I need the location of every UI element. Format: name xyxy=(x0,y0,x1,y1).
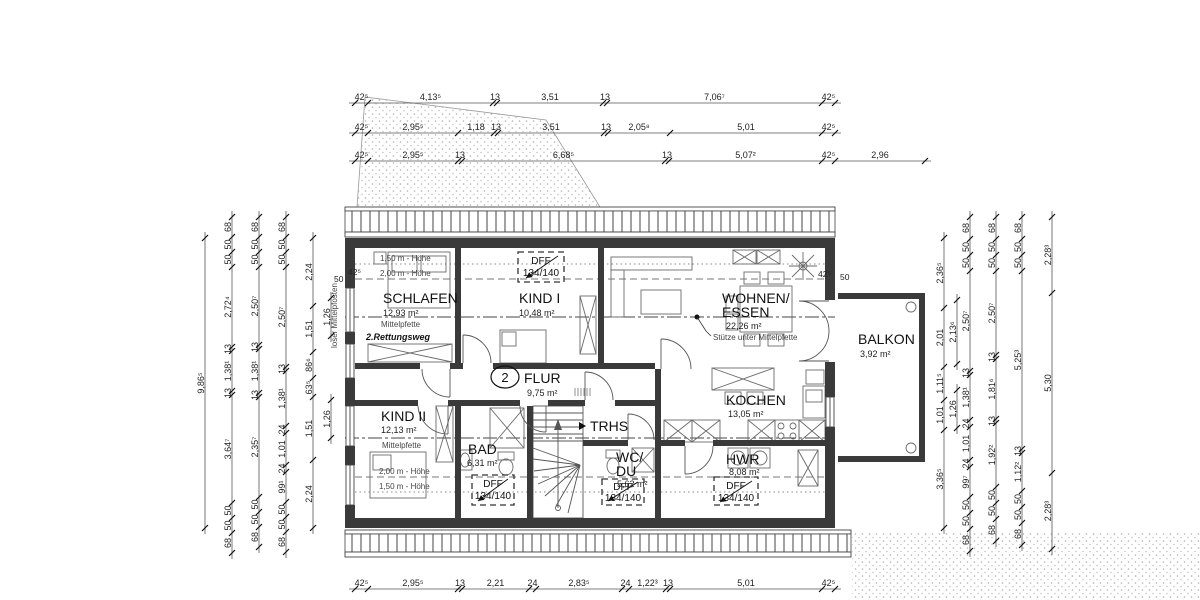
dimension-value: 68 xyxy=(1013,223,1023,233)
dimension-chain-left1: 9,86⁵ xyxy=(196,232,208,534)
dimension-chain-right5: 2,28³5,302,28³ xyxy=(1043,211,1055,555)
dimension-value: 50 xyxy=(250,514,260,524)
dimension-value: 2,28³ xyxy=(1043,501,1053,522)
svg-text:10,48 m²: 10,48 m² xyxy=(519,308,555,318)
dimension-value: 6,68⁵ xyxy=(553,150,575,160)
dimension-value: 50 xyxy=(1013,494,1023,504)
dimension-value: 68 xyxy=(223,538,233,548)
dimension-value: 5,30 xyxy=(1043,374,1053,392)
dimension-value: 1,38¹ xyxy=(277,388,287,409)
dimension-value: 42⁵ xyxy=(822,122,836,132)
dimension-value: 42⁵ xyxy=(355,578,369,588)
dimension-value: 2,50⁷ xyxy=(987,303,997,324)
door-balcony xyxy=(799,301,829,361)
door-trhs xyxy=(585,372,613,400)
dff-bad: DFF 134/140 xyxy=(472,475,514,505)
dimension-chain-left6b: 1,26 xyxy=(322,394,334,444)
svg-text:12,93 m²: 12,93 m² xyxy=(383,308,419,318)
dimension-value: 2,50⁷ xyxy=(250,296,260,317)
dimension-value: 50 xyxy=(1013,258,1023,268)
dimension-value: 2,96 xyxy=(871,150,889,160)
window xyxy=(346,288,354,332)
staircase xyxy=(533,406,583,518)
dimension-value: 50 xyxy=(987,242,997,252)
dimension-value: 1,12² xyxy=(1013,462,1023,483)
dimension-value: 5,01 xyxy=(737,122,755,132)
dimension-value: 50 xyxy=(961,516,971,526)
dimension-value: 13 xyxy=(277,364,287,374)
dimension-value: 1,18 xyxy=(467,122,485,132)
window xyxy=(826,397,834,427)
dimension-value: 3,36⁵ xyxy=(935,468,945,490)
window xyxy=(346,344,354,378)
dimension-value: 1,51 xyxy=(304,420,314,438)
dimension-value: 7,06⁷ xyxy=(704,92,725,102)
room-label-bad: BAD xyxy=(468,441,497,457)
dimension-value: 3,51 xyxy=(541,92,559,102)
svg-text:2,00 m - Höhe: 2,00 m - Höhe xyxy=(379,467,430,476)
sink-unit xyxy=(806,370,824,384)
dimension-value: 2,24 xyxy=(304,263,314,281)
room-label-hwr: HWR xyxy=(726,451,759,467)
dimension-value: 1,26 xyxy=(948,400,958,418)
dimension-value: 68 xyxy=(277,222,287,232)
dimension-value: 68 xyxy=(1013,529,1023,539)
dimension-value: 1,38¹ xyxy=(223,361,233,382)
dimension-value: 50 xyxy=(987,258,997,268)
dimension-value: 99¹ xyxy=(277,480,287,493)
door-hwr xyxy=(685,446,713,474)
dff-hwr: DFF 134/140 xyxy=(714,477,758,505)
dimension-value: 50 xyxy=(987,506,997,516)
roof-windows: DFF 134/140 DFF 134/140 DFF 134/140 DFF … xyxy=(472,252,758,505)
dimension-value: 50 xyxy=(277,239,287,249)
sofa-arm xyxy=(611,270,624,317)
door-schlafen xyxy=(422,369,450,397)
dimension-value: 68 xyxy=(223,222,233,232)
dimension-value: 2,83⁵ xyxy=(568,578,590,588)
dimension-value: 24 xyxy=(620,578,630,588)
dimension-value: 5,07² xyxy=(735,150,756,160)
dimension-value: 42⁵ xyxy=(355,150,369,160)
dimension-value: 68 xyxy=(961,223,971,233)
dimension-value: 2,21 xyxy=(487,578,505,588)
dff-size: 134/140 xyxy=(605,493,642,504)
floor-plan-sheet: DFF 134/140 DFF 134/140 DFF 134/140 DFF … xyxy=(0,0,1200,600)
dimension-value: 50 xyxy=(250,254,260,264)
dimension-value: 1,11⁵ xyxy=(935,373,945,394)
dimension-value: 13 xyxy=(491,122,501,132)
ground-texture xyxy=(852,532,1200,600)
dimension-value: 1,38¹ xyxy=(250,361,260,382)
dimension-value: 68 xyxy=(987,525,997,535)
dimension-value: 68 xyxy=(250,222,260,232)
dimension-chain-right1c: 1,26 xyxy=(948,384,960,434)
dimension-value: 2,95⁵ xyxy=(402,578,424,588)
dimension-value: 13 xyxy=(987,416,997,426)
dimension-value: 13 xyxy=(600,92,610,102)
svg-text:12,13 m²: 12,13 m² xyxy=(381,425,417,435)
oven xyxy=(806,390,822,402)
dimension-value: 50 xyxy=(961,500,971,510)
dimension-value: 1,38¹ xyxy=(961,387,971,408)
dimension-chain-right1b: 2,13⁶ xyxy=(948,294,960,370)
dimension-chain-bottom: 42⁵2,95⁵132,21242,83⁵241,22³135,0142⁵ xyxy=(349,578,841,592)
dff-size: 134/140 xyxy=(718,493,755,504)
dimension-value: 13 xyxy=(662,150,672,160)
hoehe-150-label: 1,50 m - Höhe xyxy=(380,254,431,263)
dimension-value: 13 xyxy=(455,578,465,588)
dimension-value: 2,50⁷ xyxy=(961,311,971,332)
dimension-value: 42⁵ xyxy=(355,92,369,102)
dimension-value: 50 xyxy=(277,254,287,264)
dimension-chains: 42⁵4,13⁵133,51137,06⁷42⁵42⁵2,95⁵1,18133,… xyxy=(196,92,1055,592)
dimension-value: 9,86⁵ xyxy=(196,372,206,394)
balcony xyxy=(838,293,925,462)
dimension-value: 42⁵ xyxy=(355,122,369,132)
svg-text:6,31 m²: 6,31 m² xyxy=(467,458,498,468)
dimension-value: 1,01 xyxy=(935,406,945,424)
chair xyxy=(744,272,760,284)
dimension-chain-right4: 6850505,25³131,12²505068 xyxy=(1013,211,1025,551)
dimension-value: 1,22³ xyxy=(637,578,658,588)
room-label-trhs: TRHS xyxy=(590,418,628,434)
window xyxy=(346,406,354,446)
dimension-chain-top1: 42⁵4,13⁵133,51137,06⁷42⁵ xyxy=(349,92,841,106)
dimension-value: 63⁵ xyxy=(304,380,314,394)
svg-text:8,08 m²: 8,08 m² xyxy=(729,467,760,477)
stuetze-label: Stütze unter Mittelpfette xyxy=(713,333,798,342)
room-label-flur: FLUR xyxy=(524,370,561,386)
dimension-value: 2,95⁵ xyxy=(402,122,424,132)
dff-kind1: DFF 134/140 xyxy=(518,252,564,282)
room-label-kind1: KIND I xyxy=(519,290,560,306)
dimension-value: 50 xyxy=(987,490,997,500)
room-label-balkon: BALKON xyxy=(858,331,915,347)
dimension-value: 24 xyxy=(527,578,537,588)
dimension-value: 1,26 xyxy=(322,410,332,428)
dimension-value: 50 xyxy=(1013,242,1023,252)
dimension-value: 50 xyxy=(250,499,260,509)
plant-icon xyxy=(789,252,817,280)
dff-label: DFF xyxy=(726,481,745,492)
window xyxy=(346,465,354,505)
dimension-value: 13 xyxy=(601,122,611,132)
door-kind1 xyxy=(463,335,491,363)
dimension-value: 50 xyxy=(223,520,233,530)
door-wohnen xyxy=(661,339,691,369)
dimension-value: 4,13⁵ xyxy=(420,92,442,102)
dimension-value: 2,13⁶ xyxy=(948,321,958,343)
svg-text:22,26 m²: 22,26 m² xyxy=(726,321,762,331)
hoehe-200-label: 2,00 m - Höhe xyxy=(380,269,431,278)
dimension-value: 50 xyxy=(223,239,233,249)
dimension-value: 50 xyxy=(277,504,287,514)
svg-text:DU: DU xyxy=(616,463,636,479)
dimension-value: 3,51 xyxy=(542,122,560,132)
dimension-value: 86⁶ xyxy=(304,358,314,372)
chair xyxy=(768,272,784,284)
dimension-value: 50 xyxy=(223,254,233,264)
mittelpfette-label: Mittelpfette xyxy=(381,320,421,329)
dimension-value: 2,24 xyxy=(304,485,314,503)
dimension-value: 2,72⁴ xyxy=(223,296,233,318)
dimension-value: 42⁵ xyxy=(822,578,836,588)
door-wcdu xyxy=(628,414,654,440)
dimension-value: 2,35⁷ xyxy=(250,437,260,458)
svg-text:13,05 m²: 13,05 m² xyxy=(728,409,764,419)
dimension-value: 1,51 xyxy=(304,320,314,338)
wall-dim-tl-offset: 50 xyxy=(334,274,344,284)
dimension-value: 13 xyxy=(455,150,465,160)
dimension-value: 68 xyxy=(277,537,287,547)
dff-label: DFF xyxy=(531,256,550,267)
dimension-chain-left2: 6850502,72⁴131,38¹133,64⁷505068 xyxy=(223,211,235,559)
dimension-chain-right1: 2,36⁵2,011,11⁵1,013,36⁵ xyxy=(935,232,947,534)
dimension-value: 68 xyxy=(961,535,971,545)
coffee-table xyxy=(641,290,681,314)
dff-label: DFF xyxy=(483,479,502,490)
room-label-kochen: KOCHEN xyxy=(726,392,786,408)
svg-text:5,62 m²: 5,62 m² xyxy=(617,479,648,489)
dimension-value: 99⁷ xyxy=(961,475,971,488)
dimension-chain-right2: 6850502,50⁷131,38¹241,012499⁷505068 xyxy=(961,211,973,557)
room-label-kind2: KIND II xyxy=(381,408,426,424)
dimension-value: 5,25³ xyxy=(1013,350,1023,371)
dimension-value: 13 xyxy=(1013,446,1023,456)
dimension-value: 1,26 xyxy=(322,308,332,326)
dimension-value: 50 xyxy=(961,258,971,268)
svg-text:9,75 m²: 9,75 m² xyxy=(527,388,558,398)
dimension-value: 68 xyxy=(250,532,260,542)
room-label-schlafen: SCHLAFEN xyxy=(383,290,458,306)
dimension-value: 13 xyxy=(961,368,971,378)
svg-text:ESSEN: ESSEN xyxy=(722,304,769,320)
dimension-value: 1,01 xyxy=(961,435,971,453)
dimension-value: 2,50⁷ xyxy=(277,307,287,328)
dimension-value: 2,01 xyxy=(935,329,945,347)
dimension-chain-right3: 6850502,50⁷131,81⁶131,92²505068 xyxy=(987,211,999,547)
dimension-value: 2,95⁵ xyxy=(402,150,424,160)
dimension-value: 13 xyxy=(250,342,260,352)
dff-size: 134/140 xyxy=(523,268,560,279)
balcony-drain xyxy=(906,302,916,312)
floor-plan-drawing: DFF 134/140 DFF 134/140 DFF 134/140 DFF … xyxy=(0,0,1200,600)
dimension-value: 50 xyxy=(250,239,260,249)
dimension-value: 42⁵ xyxy=(822,92,836,102)
dimension-chain-left5: 2,241,5186⁶63⁵1,512,24 xyxy=(304,232,316,534)
bed-single xyxy=(500,330,546,363)
dimension-chain-left3: 6850502,50⁷131,38¹132,35⁷505068 xyxy=(250,211,262,553)
dimension-value: 5,01 xyxy=(737,578,755,588)
dimension-value: 50 xyxy=(1013,510,1023,520)
wall-dim-balcony-thickness: 42⁵ xyxy=(818,269,831,279)
rettungsweg-label: 2.Rettungsweg xyxy=(365,332,431,342)
dimension-value: 50 xyxy=(277,519,287,529)
trhs-arrow-icon xyxy=(579,422,586,430)
wall-dim-tl-thickness: 42⁵ xyxy=(348,267,361,277)
dimension-value: 13 xyxy=(490,92,500,102)
svg-text:1,50 m - Höhe: 1,50 m - Höhe xyxy=(379,482,430,491)
dimension-value: 1,01 xyxy=(277,440,287,458)
flur-hatch-mark xyxy=(575,388,590,396)
stove xyxy=(775,420,799,442)
dimension-value: 13 xyxy=(223,344,233,354)
dimension-value: 13 xyxy=(987,352,997,362)
sofa-back xyxy=(611,257,692,270)
dimension-chain-left4: 6850502,50⁷131,38¹241,012499¹505068 xyxy=(277,211,289,558)
dimension-value: 13 xyxy=(250,390,260,400)
dimension-value: 42⁵ xyxy=(822,150,836,160)
dimension-value: 13 xyxy=(223,388,233,398)
balcony-drain xyxy=(906,443,916,453)
dimension-value: 2,28³ xyxy=(1043,245,1053,266)
level-number: 2 xyxy=(501,370,508,385)
dimension-value: 2,05⁸ xyxy=(628,122,650,132)
pillow xyxy=(502,332,516,346)
svg-text:Mittelpfette: Mittelpfette xyxy=(382,441,422,450)
toilet xyxy=(498,452,514,475)
dimension-value: 68 xyxy=(987,223,997,233)
stair-direction-arrow xyxy=(554,419,562,430)
wall-dim-balcony-offset: 50 xyxy=(840,272,850,282)
dff-size: 134/140 xyxy=(475,491,512,502)
dimension-value: 50 xyxy=(961,242,971,252)
dimension-value: 13 xyxy=(663,578,673,588)
dimension-value: 3,64⁷ xyxy=(223,439,233,460)
dimension-value: 50 xyxy=(223,505,233,515)
svg-text:3,92 m²: 3,92 m² xyxy=(860,349,891,359)
dimension-value: 2,36⁵ xyxy=(935,262,945,284)
dimension-value: 1,81⁶ xyxy=(987,378,997,400)
dimension-value: 1,92² xyxy=(987,445,997,466)
